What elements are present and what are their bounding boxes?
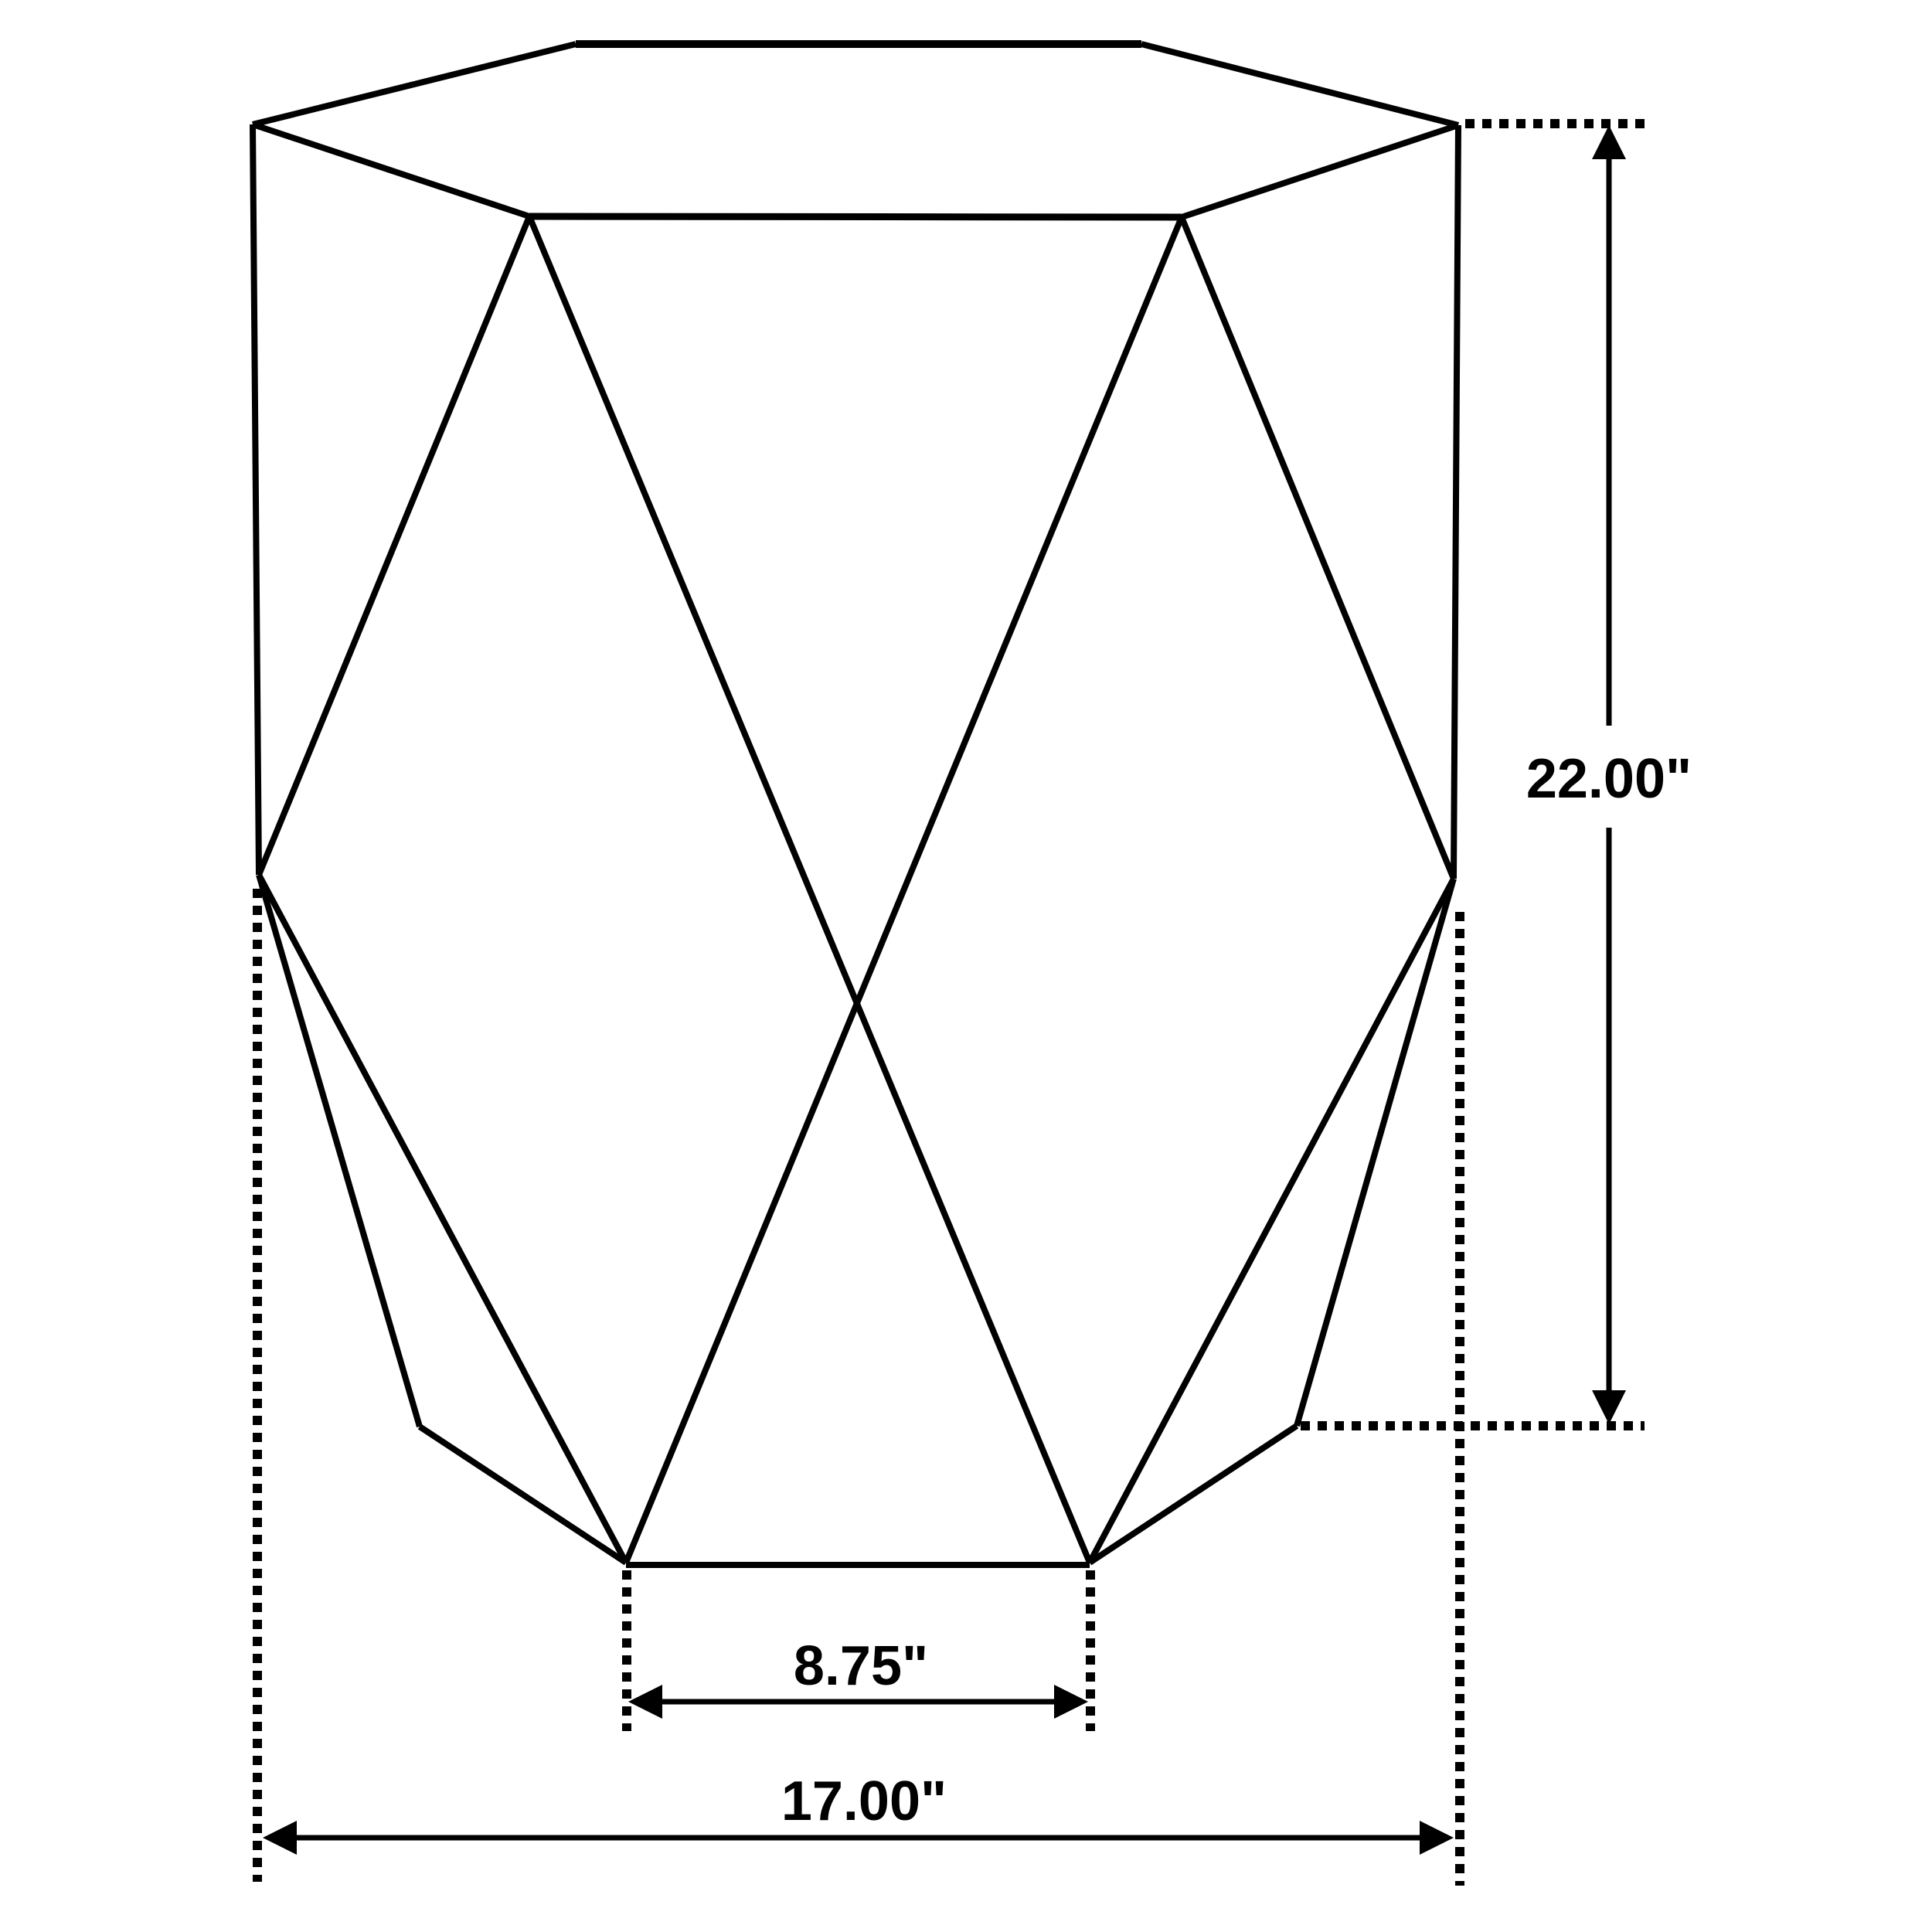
svg-text:22.00": 22.00" [1526,748,1692,810]
svg-text:17.00": 17.00" [781,1770,947,1832]
svg-text:8.75": 8.75" [794,1635,928,1697]
